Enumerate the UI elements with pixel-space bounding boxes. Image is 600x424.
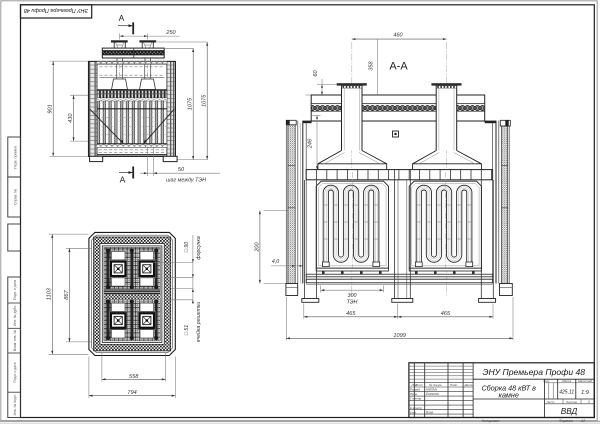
svg-text:Масса: Масса — [562, 379, 571, 383]
svg-text:1:9: 1:9 — [581, 390, 589, 396]
svg-text:ТЭН: ТЭН — [347, 299, 358, 305]
svg-text:Т.контр.: Т.контр. — [410, 397, 422, 401]
svg-text:Инв. № подл.: Инв. № подл. — [13, 394, 17, 415]
svg-text:358: 358 — [368, 60, 374, 70]
svg-text:60: 60 — [313, 70, 319, 77]
svg-text:558: 558 — [129, 374, 139, 380]
svg-text:№ докум.: № докум. — [429, 383, 442, 387]
svg-text:□ 90: □ 90 — [184, 242, 190, 252]
svg-text:465: 465 — [441, 311, 451, 317]
svg-text:794: 794 — [127, 390, 136, 396]
svg-text:Дата: Дата — [464, 383, 473, 387]
svg-text:4,0: 4,0 — [272, 259, 279, 265]
svg-text:460: 460 — [393, 33, 403, 39]
svg-text:Найдин: Найдин — [426, 388, 437, 392]
svg-text:Взам. инв. №: Взам. инв. № — [13, 330, 17, 351]
svg-text:465: 465 — [346, 311, 356, 317]
svg-text:□ 51: □ 51 — [184, 325, 190, 335]
svg-text:250: 250 — [165, 30, 176, 36]
svg-text:камне: камне — [499, 391, 519, 400]
svg-text:200: 200 — [254, 241, 260, 252]
svg-text:А-А: А-А — [389, 61, 408, 73]
svg-text:Справ. №: Справ. № — [14, 189, 18, 205]
svg-text:300: 300 — [348, 293, 357, 299]
svg-text:Подп. и дата: Подп. и дата — [13, 280, 17, 300]
svg-text:1099: 1099 — [393, 333, 405, 339]
svg-text:Н.контр.: Н.контр. — [410, 406, 423, 410]
svg-text:ЭНУ Премьера Профи 48: ЭНУ Премьера Профи 48 — [24, 7, 88, 13]
svg-text:867: 867 — [64, 290, 70, 300]
svg-text:ЭНУ Премьера Профи 48: ЭНУ Премьера Профи 48 — [483, 367, 586, 377]
svg-text:Вовк: Вовк — [426, 410, 434, 414]
svg-text:шаг между ТЭН: шаг между ТЭН — [166, 178, 206, 184]
svg-text:Копировал: Копировал — [482, 419, 500, 423]
svg-text:1103: 1103 — [47, 287, 53, 300]
svg-text:Лист: Лист — [546, 400, 555, 404]
svg-text:А: А — [119, 13, 125, 23]
svg-text:А2: А2 — [580, 419, 585, 423]
svg-text:1: 1 — [588, 400, 590, 404]
svg-text:А: А — [120, 175, 126, 185]
svg-text:Масштаб: Масштаб — [578, 379, 592, 383]
svg-text:Листов: Листов — [565, 400, 577, 404]
svg-text:Подп. и дата: Подп. и дата — [13, 362, 17, 382]
svg-text:901: 901 — [48, 104, 54, 113]
svg-text:Утв.: Утв. — [410, 410, 417, 414]
svg-text:Инв. № дубл.: Инв. № дубл. — [13, 305, 17, 326]
svg-text:50: 50 — [178, 167, 185, 173]
svg-text:форсунка: форсунка — [196, 236, 202, 260]
svg-text:Лист: Лист — [414, 383, 423, 387]
svg-text:246: 246 — [307, 138, 313, 149]
svg-text:Лит.: Лит. — [542, 379, 550, 383]
svg-text:Божкова: Божкова — [426, 392, 439, 396]
svg-text:1075: 1075 — [188, 97, 194, 110]
svg-text:Перв. примен.: Перв. примен. — [14, 145, 18, 169]
svg-text:Разраб.: Разраб. — [410, 388, 421, 392]
svg-text:Подп.: Подп. — [450, 383, 458, 387]
svg-text:Пров.: Пров. — [410, 392, 418, 396]
svg-text:430: 430 — [68, 113, 74, 123]
svg-text:Формат: Формат — [559, 419, 573, 423]
svg-text:ВВД: ВВД — [561, 407, 578, 416]
svg-text:ячейка решетки: ячейка решетки — [195, 302, 202, 344]
svg-text:1075: 1075 — [202, 94, 208, 107]
svg-text:425,11: 425,11 — [559, 390, 574, 396]
